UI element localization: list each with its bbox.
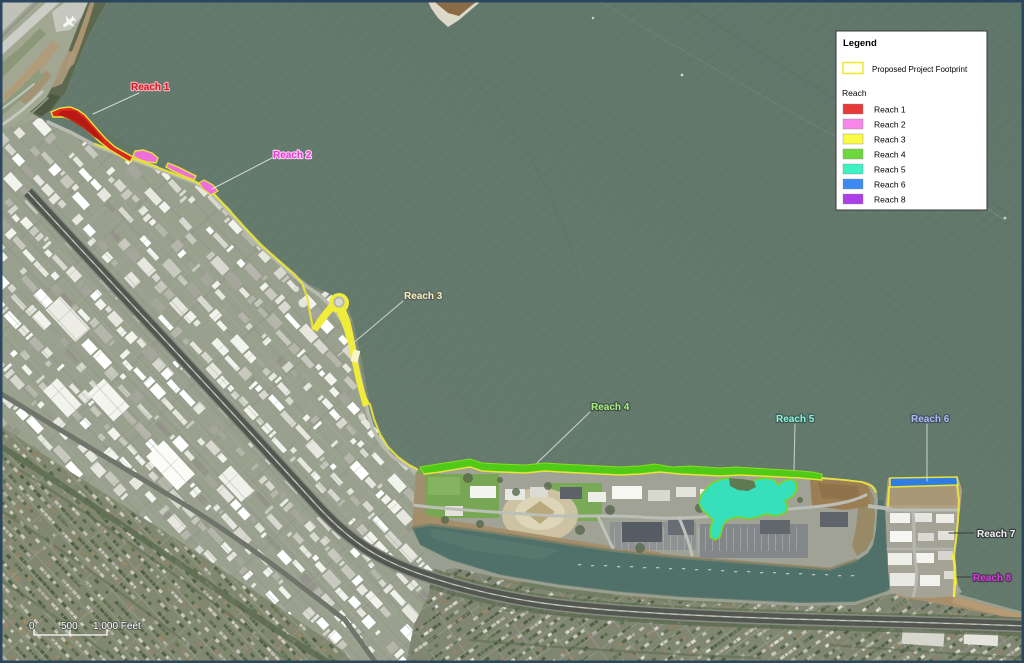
svg-text:Reach 2: Reach 2 <box>874 120 906 130</box>
svg-text:Legend: Legend <box>843 38 877 49</box>
svg-text:Reach: Reach <box>842 88 867 98</box>
svg-text:Reach 4: Reach 4 <box>591 402 630 413</box>
svg-text:Reach 3: Reach 3 <box>404 291 443 302</box>
svg-text:1,000 Feet: 1,000 Feet <box>93 621 141 632</box>
svg-text:Reach 5: Reach 5 <box>776 414 815 425</box>
svg-text:500: 500 <box>61 621 78 632</box>
svg-text:Reach 6: Reach 6 <box>874 180 906 190</box>
svg-text:Reach 8: Reach 8 <box>973 573 1012 584</box>
svg-text:Reach 1: Reach 1 <box>874 105 906 115</box>
svg-text:Proposed Project Footprint: Proposed Project Footprint <box>872 65 968 74</box>
svg-text:Reach 8: Reach 8 <box>874 195 906 205</box>
svg-text:Reach 1: Reach 1 <box>131 82 170 93</box>
svg-text:Reach 5: Reach 5 <box>874 165 906 175</box>
svg-text:Reach 3: Reach 3 <box>874 135 906 145</box>
svg-text:Reach 4: Reach 4 <box>874 150 906 160</box>
svg-text:0: 0 <box>29 621 35 632</box>
svg-text:Reach 7: Reach 7 <box>977 529 1016 540</box>
svg-text:Reach 2: Reach 2 <box>273 150 312 161</box>
svg-text:Reach 6: Reach 6 <box>911 414 950 425</box>
